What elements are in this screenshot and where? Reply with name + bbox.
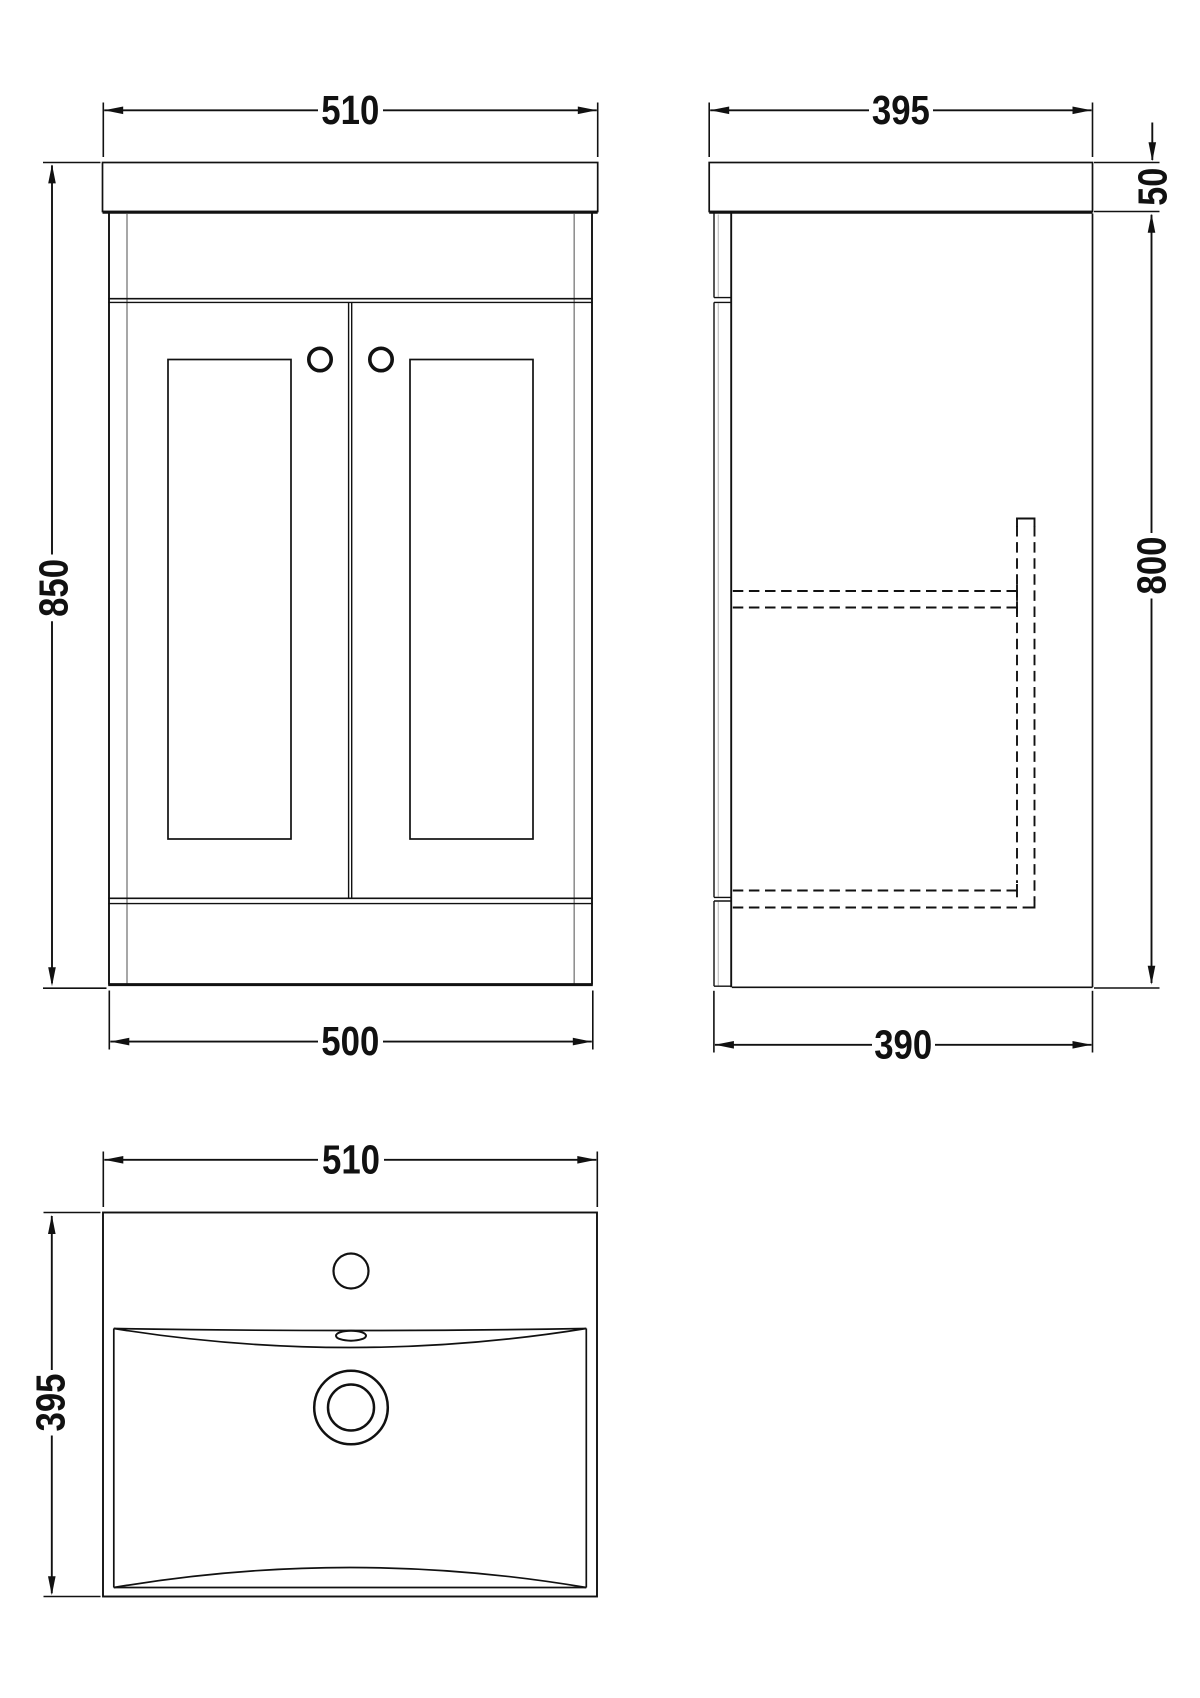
svg-text:800: 800 xyxy=(1129,537,1175,595)
svg-text:510: 510 xyxy=(322,1136,380,1182)
svg-text:500: 500 xyxy=(321,1018,379,1064)
svg-text:390: 390 xyxy=(874,1021,932,1067)
svg-text:395: 395 xyxy=(872,87,930,133)
svg-text:395: 395 xyxy=(27,1374,73,1432)
svg-text:50: 50 xyxy=(1129,168,1175,206)
svg-text:510: 510 xyxy=(321,87,379,133)
svg-text:850: 850 xyxy=(30,559,76,617)
